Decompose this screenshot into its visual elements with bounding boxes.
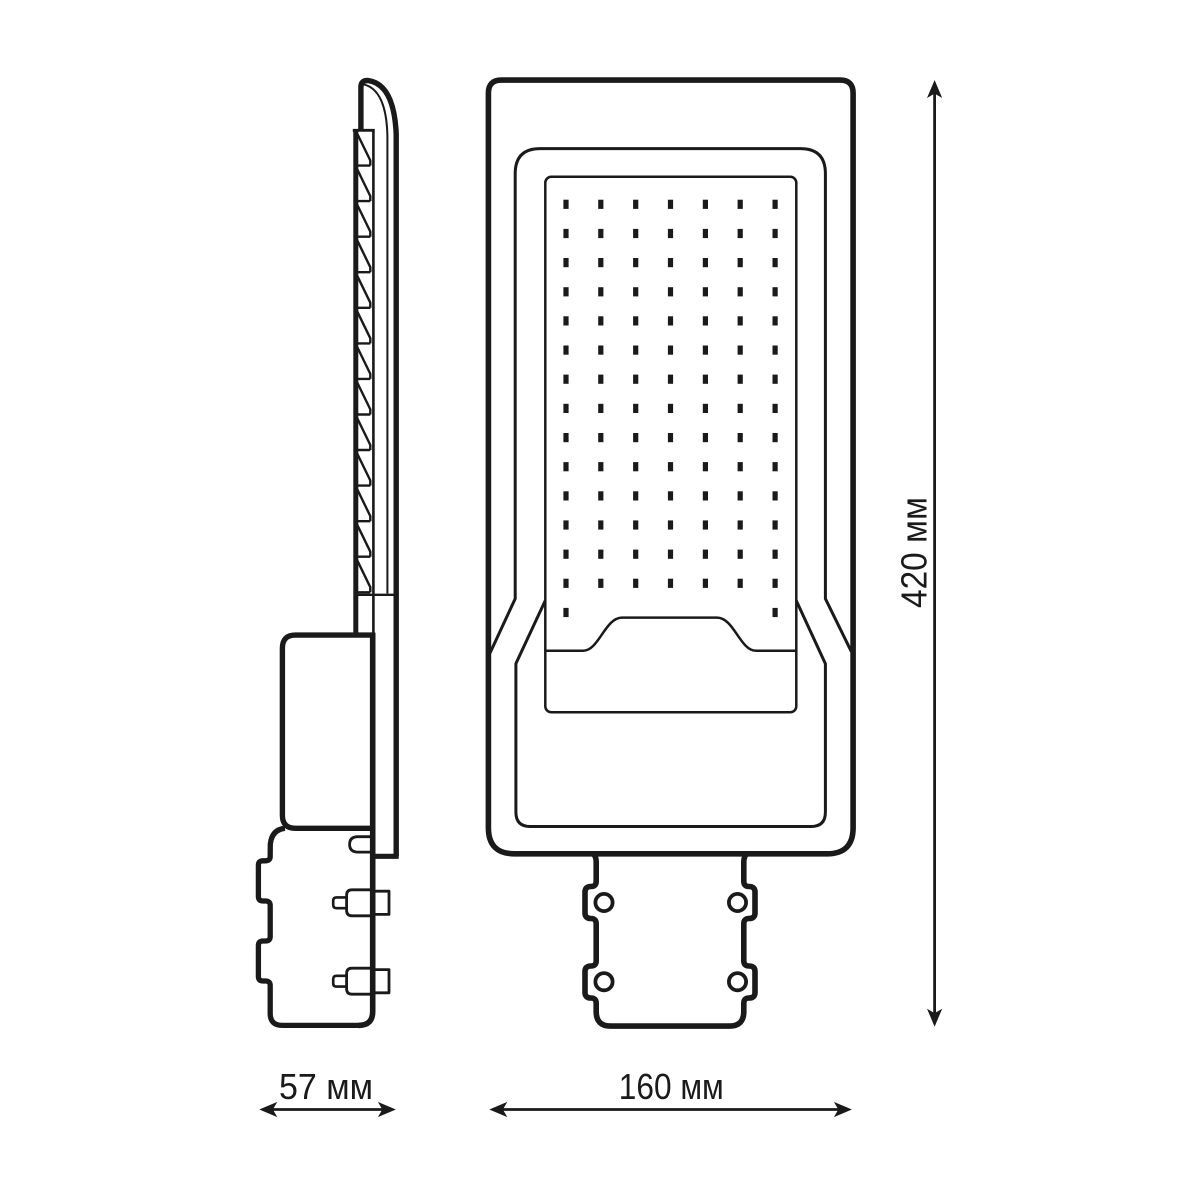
svg-text:420 мм: 420 мм <box>894 497 935 608</box>
svg-text:160 мм: 160 мм <box>619 1066 724 1107</box>
svg-text:57 мм: 57 мм <box>279 1066 373 1107</box>
